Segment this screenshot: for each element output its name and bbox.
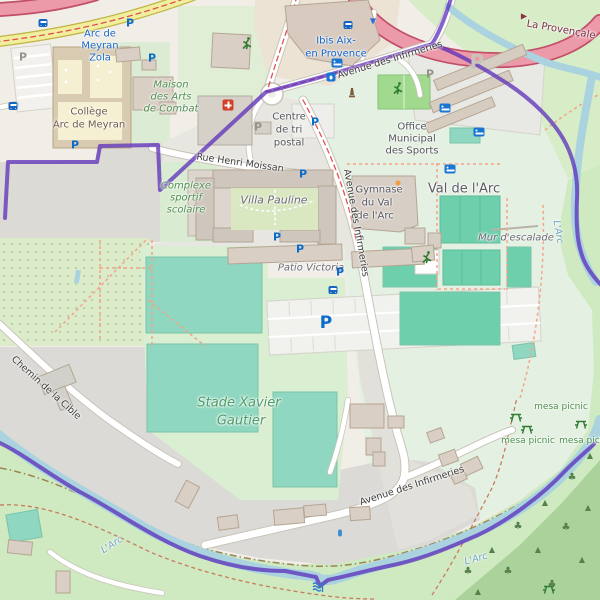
map-geometry-layer (0, 0, 600, 600)
openstreetmap-canvas[interactable]: Arc deMeyranZolaCollègeArc de MeyranMais… (0, 0, 600, 600)
